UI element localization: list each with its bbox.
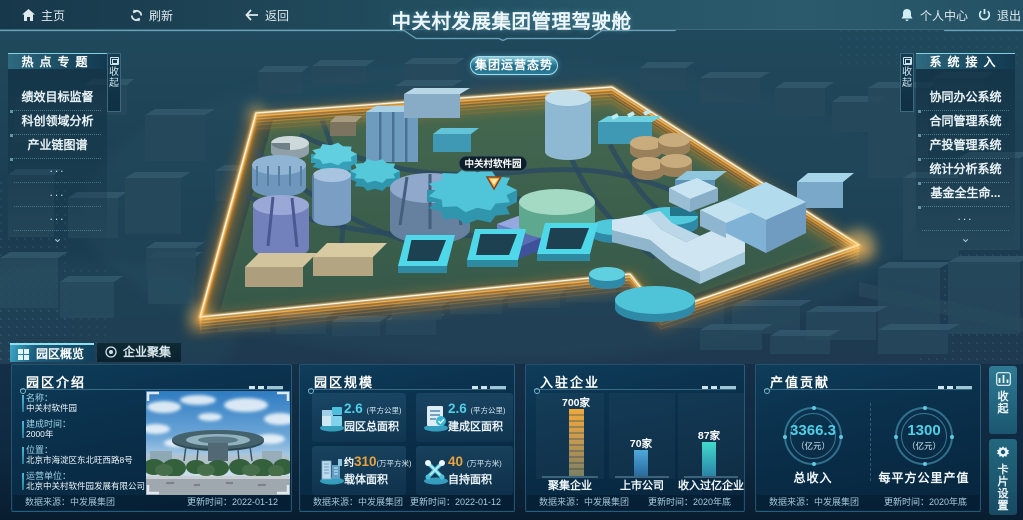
svg-text:中关村软件园: 中关村软件园 <box>464 158 521 170</box>
svg-text:上市公司: 上市公司 <box>620 478 664 491</box>
svg-text:87家: 87家 <box>698 429 721 442</box>
svg-text:70家: 70家 <box>630 437 653 450</box>
svg-text:聚集企业: 聚集企业 <box>547 478 592 491</box>
svg-text:700家: 700家 <box>562 396 591 409</box>
svg-text:收入过亿企业: 收入过亿企业 <box>678 478 744 491</box>
